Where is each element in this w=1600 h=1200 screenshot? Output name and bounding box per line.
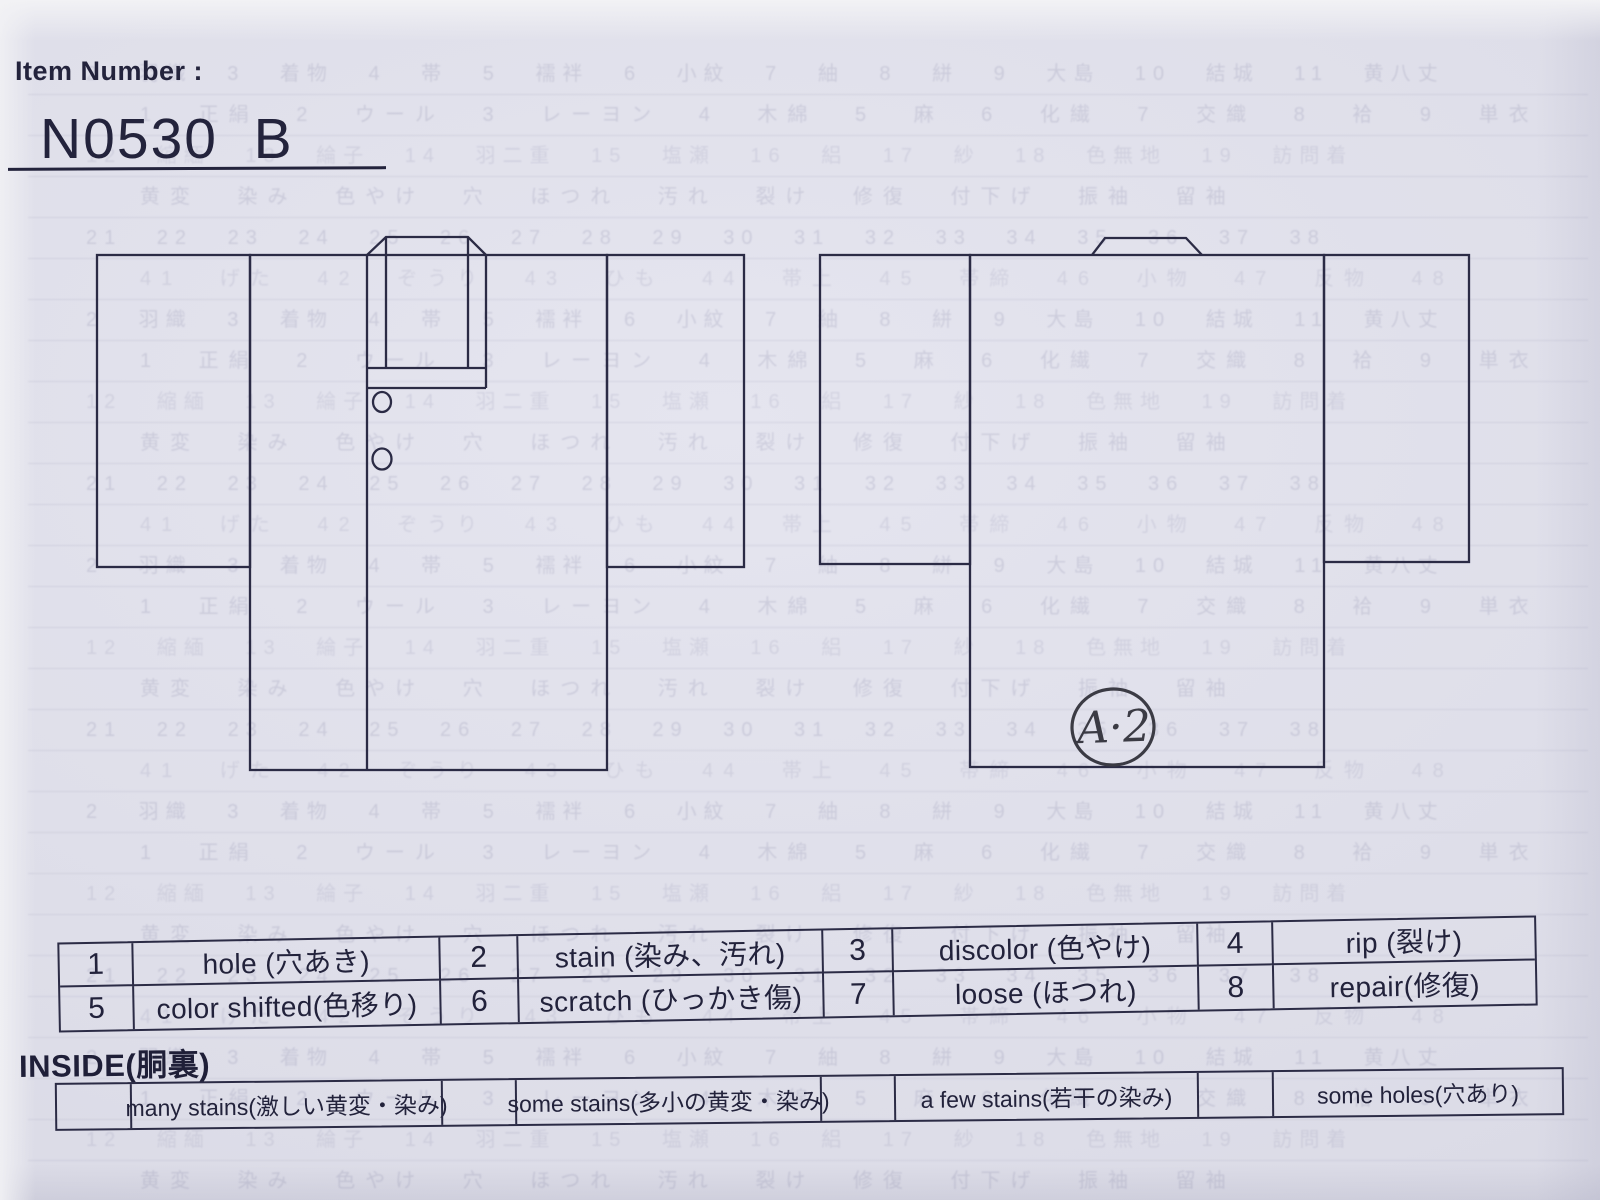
- legend-code-3: 3: [821, 929, 892, 973]
- ghost-row: 21 22 23 24 25 26 27 28 29 30 31 32 33 3…: [28, 464, 1588, 505]
- front-tie-loop-top-circle: [373, 392, 391, 412]
- legend-code-6: 6: [439, 979, 518, 1023]
- legend-code-2: 2: [438, 936, 517, 980]
- legend-code-1: 1: [59, 943, 132, 987]
- defect-legend-table: 1 hole (穴あき) 2 stain (染み、汚れ) 3 discolor …: [57, 915, 1537, 1032]
- legend-label-rip: rip (裂け): [1271, 917, 1535, 965]
- inside-section-heading: INSIDE(胴裏): [19, 1039, 210, 1086]
- legend-label-loose: loose (ほつれ): [892, 967, 1198, 1016]
- inside-checkbox-cell-3: [820, 1076, 894, 1121]
- ghost-row: 41 げた 42 ぞうり 43 ひも 44 帯上 45 帯締 46 小物 47 …: [28, 751, 1588, 792]
- ghost-row: 12 縮緬 13 綸子 14 羽二重 15 塩瀬 16 絽 17 紗 18 色無…: [28, 382, 1588, 423]
- front-body-outline: [250, 255, 607, 770]
- ghost-row: 12 縮緬 13 綸子 14 羽二重 15 塩瀬 16 絽 17 紗 18 色無…: [28, 874, 1588, 915]
- front-tie-loop-bottom-circle: [373, 449, 392, 470]
- ghost-row: 黄変 染み 色やけ 穴 ほつれ 汚れ 裂け 修復 付下げ 振袖 留袖: [28, 1161, 1588, 1200]
- back-right-sleeve-outline: [1324, 255, 1469, 562]
- legend-code-4: 4: [1196, 922, 1272, 966]
- front-collar-band-lines: [367, 368, 486, 388]
- front-collar-inner-lines: [386, 237, 468, 368]
- item-number-label: Item Number :: [15, 56, 203, 87]
- ghost-row: 黄変 染み 色やけ 穴 ほつれ 汚れ 裂け 修復 付下げ 振袖 留袖: [28, 177, 1588, 218]
- front-right-sleeve-outline: [607, 255, 744, 567]
- legend-code-7: 7: [822, 972, 893, 1016]
- inside-option-a-few-stains: a few stains(若干の染み): [894, 1073, 1197, 1120]
- ghost-row: 21 22 23 24 25 26 27 28 29 30 31 32 33 3…: [28, 710, 1588, 751]
- legend-label-repair: repair(修復): [1272, 960, 1536, 1008]
- inside-option-many-stains: many stains(激しい黄変・染み): [130, 1081, 441, 1128]
- ghost-row: 2 羽織 3 着物 4 帯 5 襦袢 6 小紋 7 紬 8 絣 9 大島 10 …: [28, 546, 1588, 587]
- ghost-row: 黄変 染み 色やけ 穴 ほつれ 汚れ 裂け 修復 付下げ 振袖 留袖: [28, 423, 1588, 464]
- ghost-row: 1 正絹 2 ウール 3 レーヨン 4 木綿 5 麻 6 化繊 7 交織 8 袷…: [28, 341, 1588, 382]
- inside-checkbox-cell-4: [1197, 1072, 1272, 1117]
- ghost-row: 黄変 染み 色やけ 穴 ほつれ 汚れ 裂け 修復 付下げ 振袖 留袖: [28, 669, 1588, 710]
- legend-label-hole: hole (穴あき): [131, 938, 439, 987]
- ghost-row: 21 22 23 24 25 26 27 28 29 30 31 32 33 3…: [28, 218, 1588, 259]
- front-left-sleeve-outline: [97, 255, 250, 567]
- legend-label-discolor: discolor (色やけ): [891, 924, 1197, 973]
- ghost-row: 2 羽織 3 着物 4 帯 5 襦袢 6 小紋 7 紬 8 絣 9 大島 10 …: [28, 300, 1588, 341]
- ghost-row: 2 羽織 3 着物 4 帯 5 襦袢 6 小紋 7 紬 8 絣 9 大島 10 …: [28, 54, 1588, 95]
- inside-condition-table: many stains(激しい黄変・染み) some stains(多小の黄変・…: [55, 1067, 1564, 1131]
- ghost-row: 1 正絹 2 ウール 3 レーヨン 4 木綿 5 麻 6 化繊 7 交織 8 袷…: [28, 587, 1588, 628]
- inside-option-some-holes: some holes(穴あり): [1272, 1069, 1562, 1116]
- legend-label-stain: stain (染み、汚れ): [516, 931, 822, 980]
- inside-option-some-stains: some stains(多小の黄変・染み): [515, 1077, 820, 1124]
- ghost-row: 1 正絹 2 ウール 3 レーヨン 4 木綿 5 麻 6 化繊 7 交織 8 袷…: [28, 833, 1588, 874]
- front-collar-outer-line: [367, 237, 486, 770]
- ghost-row: 41 げた 42 ぞうり 43 ひも 44 帯上 45 帯締 46 小物 47 …: [28, 259, 1588, 300]
- legend-label-scratch: scratch (ひっかき傷): [517, 974, 823, 1023]
- inside-checkbox-cell-1: [57, 1084, 130, 1129]
- scanned-inspection-sheet: 2 羽織 3 着物 4 帯 5 襦袢 6 小紋 7 紬 8 絣 9 大島 10 …: [0, 0, 1600, 1200]
- ghost-row: 12 縮緬 13 綸子 14 羽二重 15 塩瀬 16 絽 17 紗 18 色無…: [28, 628, 1588, 669]
- legend-label-color-shifted: color shifted(色移り): [132, 981, 440, 1030]
- back-left-sleeve-outline: [820, 255, 970, 564]
- back-collar-trapezoid: [1092, 238, 1202, 255]
- legend-code-5: 5: [60, 986, 133, 1030]
- ghost-row: 2 羽織 3 着物 4 帯 5 襦袢 6 小紋 7 紬 8 絣 9 大島 10 …: [28, 792, 1588, 833]
- inside-checkbox-cell-2: [441, 1080, 515, 1125]
- ghost-row: 41 げた 42 ぞうり 43 ひも 44 帯上 45 帯締 46 小物 47 …: [28, 505, 1588, 546]
- legend-code-8: 8: [1197, 965, 1273, 1009]
- back-body-outline: [970, 255, 1324, 767]
- back-annotation-text: A·2: [1071, 698, 1157, 759]
- item-number-value: N0530 B: [40, 106, 294, 172]
